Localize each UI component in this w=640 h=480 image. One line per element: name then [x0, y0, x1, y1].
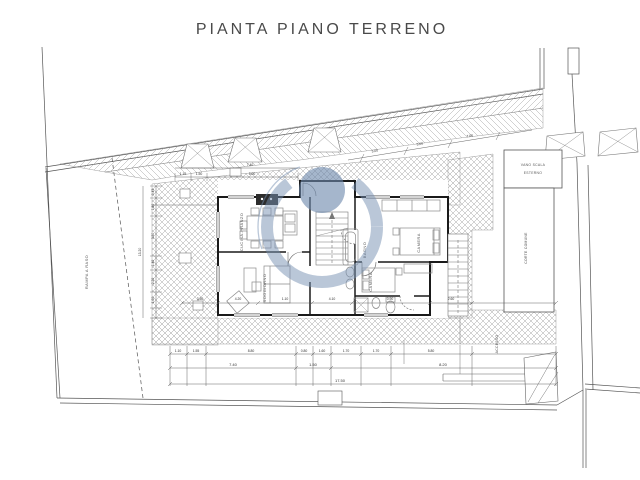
dim-t-total: 7.40 — [247, 163, 254, 167]
dim-b2-2: 8.20 — [439, 362, 448, 367]
dim-b1-1: 1.55 — [193, 349, 200, 353]
street-label-left: RAMPA A RASO — [84, 255, 89, 289]
annex-side-label: CORTE COMUNE — [524, 232, 528, 264]
dim-s-0: 3.00 — [371, 149, 378, 154]
room-label-living: SOGGIORNO — [262, 274, 267, 303]
dim-b1-4: 1.60 — [319, 349, 326, 353]
dim-l-total: 13.20 — [138, 248, 142, 257]
dim-m-1: 4.20 — [235, 297, 242, 301]
dim-l-4: 2.20 — [151, 278, 155, 285]
dim-total: 17.50 — [335, 378, 346, 383]
house-interior-2 — [218, 197, 430, 318]
dim-m-3: 4.10 — [329, 297, 336, 301]
floor-plan-drawing: PIANTA PIANO TERRENO — [0, 0, 640, 480]
floor-plan-page: PIANTA PIANO TERRENO — [0, 0, 640, 480]
watermark-dot — [299, 167, 345, 213]
access-label-right: ACCESSO — [495, 335, 499, 354]
dim-t-0: 1.10 — [180, 172, 187, 176]
dim-b1-0: 1.10 — [175, 349, 182, 353]
dim-b1-6: 1.70 — [373, 349, 380, 353]
dim-m-2: 1.10 — [282, 297, 289, 301]
dim-b1-3: 0.80 — [301, 349, 308, 353]
dim-b1-2: 8.80 — [248, 349, 255, 353]
annex-label-line2: ESTERNO — [524, 171, 543, 175]
dim-l-1: 1.80 — [151, 204, 155, 211]
dim-b1-5: 1.70 — [343, 349, 350, 353]
room-label-bedroom1: CAMERA — [416, 233, 421, 253]
site-details — [318, 340, 558, 405]
dim-m-0: 3.50 — [197, 297, 204, 301]
room-label-kitchen: CUCINA-PRANZO — [239, 213, 244, 252]
dim-t-2: 5.00 — [249, 172, 256, 176]
dim-m-5: 2.60 — [448, 297, 455, 301]
dim-b1-7: 5.80 — [428, 349, 435, 353]
dim-t-1: 1.50 — [196, 172, 203, 176]
dim-l-3: 1.40 — [151, 260, 155, 267]
page-title: PIANTA PIANO TERRENO — [196, 21, 448, 38]
dim-b2-1: 1.50 — [309, 362, 318, 367]
external-stair — [448, 234, 468, 316]
room-label-bedroom2: CAMERA — [368, 272, 373, 292]
dim-s-2: 7.00 — [466, 134, 473, 139]
dim-b2-0: 7.40 — [229, 362, 238, 367]
dim-m-4: 0.90 — [387, 297, 394, 301]
dim-l-5: 1.60 — [151, 297, 155, 304]
annex-label-line1: VANO SCALA — [521, 163, 546, 167]
dim-s-1: 5.00 — [416, 142, 423, 147]
dim-l-0: 0.45 — [151, 189, 155, 196]
dim-l-2: 3.30 — [151, 233, 155, 240]
